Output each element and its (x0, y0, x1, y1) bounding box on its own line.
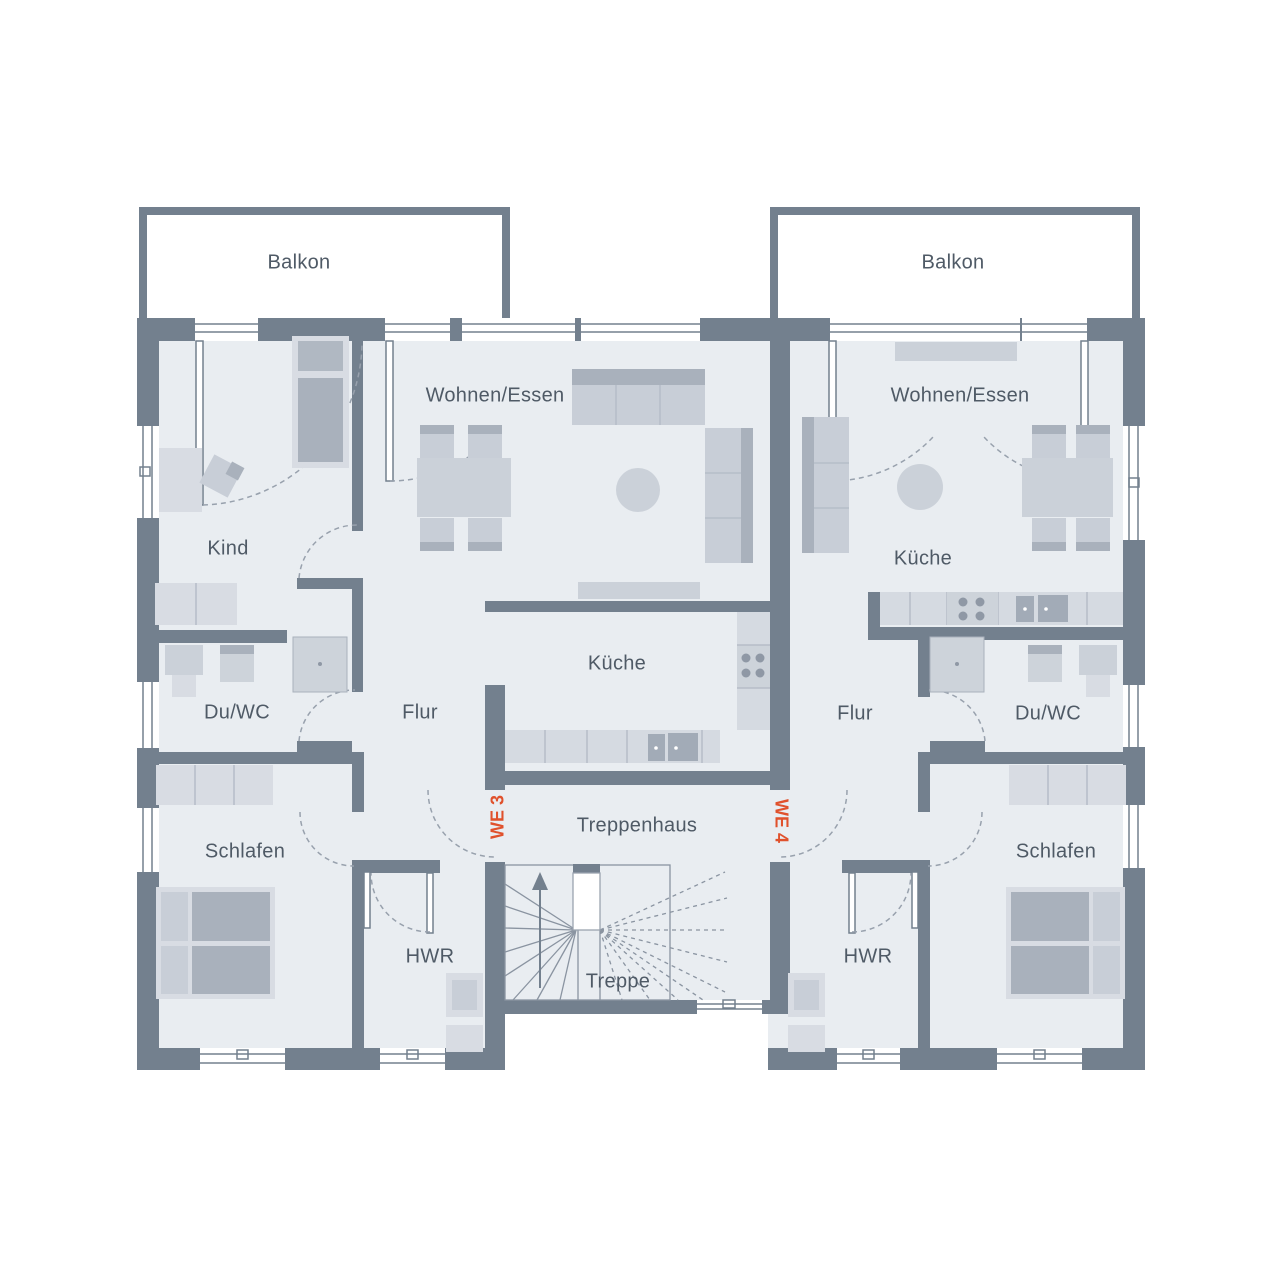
kind-desk (159, 448, 202, 512)
coffee-table-left (616, 468, 660, 512)
floor-plan-drawing (0, 0, 1280, 1280)
sideboard-left (578, 582, 700, 599)
kind-bed (292, 336, 349, 468)
coffee-table-right (897, 464, 943, 510)
floor-plan-page: Balkon Balkon Wohnen/Essen Wohnen/Essen … (0, 0, 1280, 1280)
sofa-right (802, 417, 849, 553)
kind-wardrobe (155, 583, 237, 625)
schlafen-right-bed (1006, 887, 1125, 999)
schlafen-left-wardrobe (156, 765, 273, 805)
hwr-right-machines (788, 973, 825, 1052)
schlafen-right-wardrobe (1009, 765, 1126, 805)
schlafen-left-bed (156, 887, 275, 999)
kitchen-right-counter (880, 592, 1123, 625)
balcony-left (139, 207, 510, 318)
hwr-left-machines (446, 973, 483, 1052)
sideboard-right (895, 342, 1017, 361)
balcony-right (770, 207, 1140, 318)
